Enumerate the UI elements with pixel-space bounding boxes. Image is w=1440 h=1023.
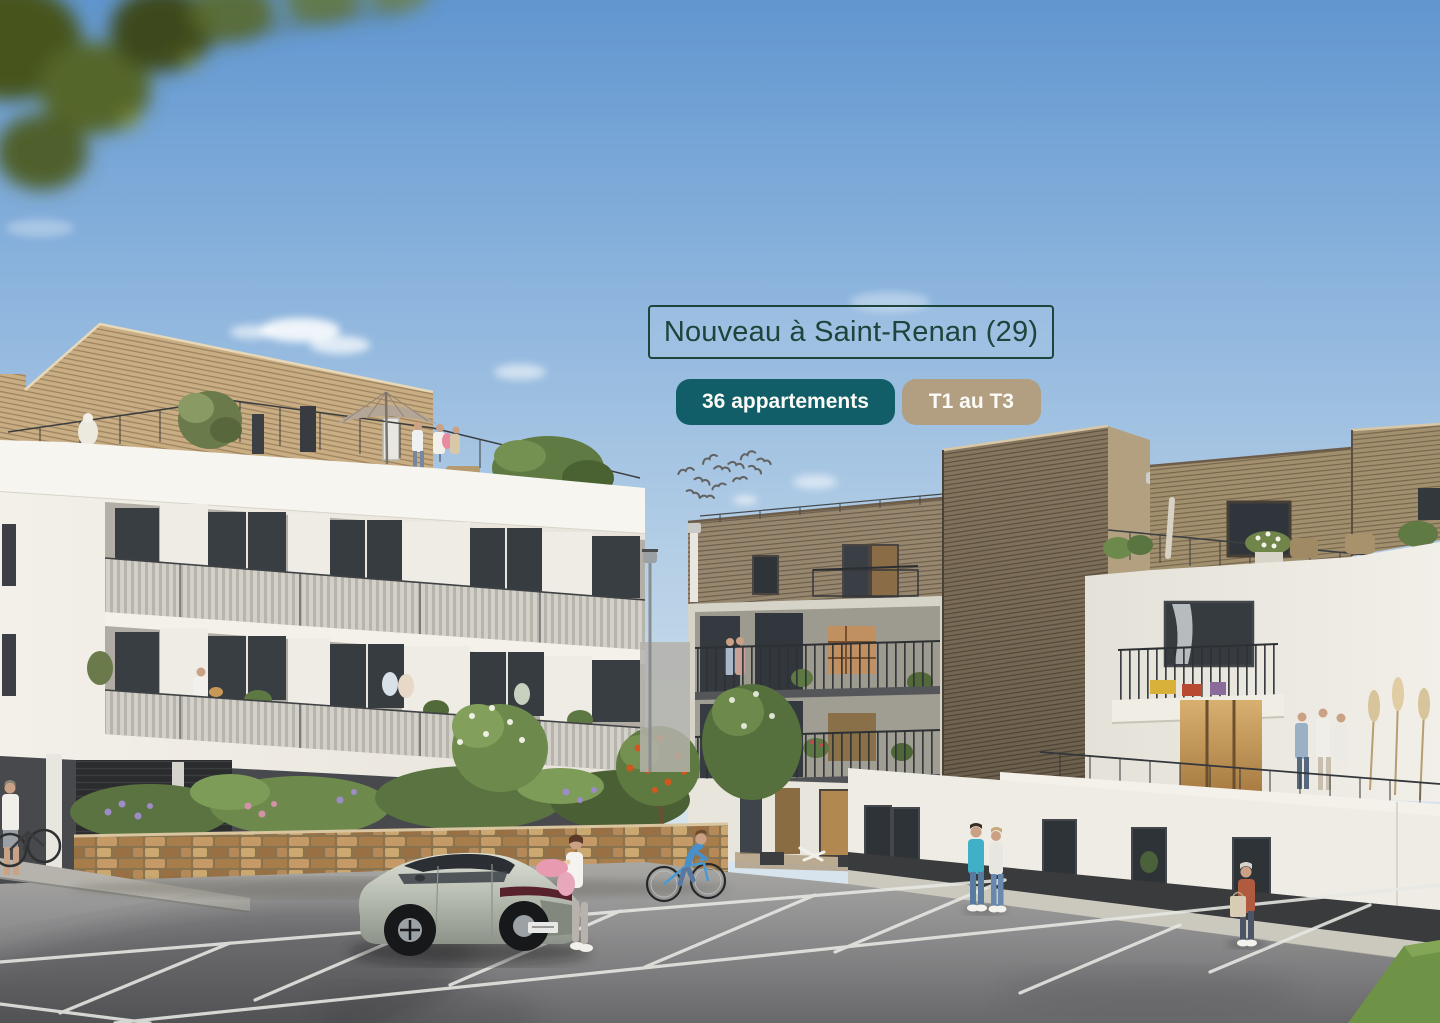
units-badge-label: 36 appartements [702, 390, 869, 414]
architectural-render [0, 0, 1440, 1023]
location-title: Nouveau à Saint-Renan (29) [664, 316, 1038, 349]
units-badge: 36 appartements [676, 379, 895, 425]
background-wall-gap [640, 642, 690, 772]
typology-badge-label: T1 au T3 [929, 390, 1014, 414]
location-title-box: Nouveau à Saint-Renan (29) [648, 305, 1054, 359]
marketing-visual: Nouveau à Saint-Renan (29) 36 appartemen… [0, 0, 1440, 1023]
facade-right-section [1085, 542, 1440, 802]
badge-row: 36 appartements T1 au T3 [676, 379, 1041, 425]
typology-badge: T1 au T3 [902, 379, 1041, 425]
rear-wing-wood [0, 374, 26, 446]
